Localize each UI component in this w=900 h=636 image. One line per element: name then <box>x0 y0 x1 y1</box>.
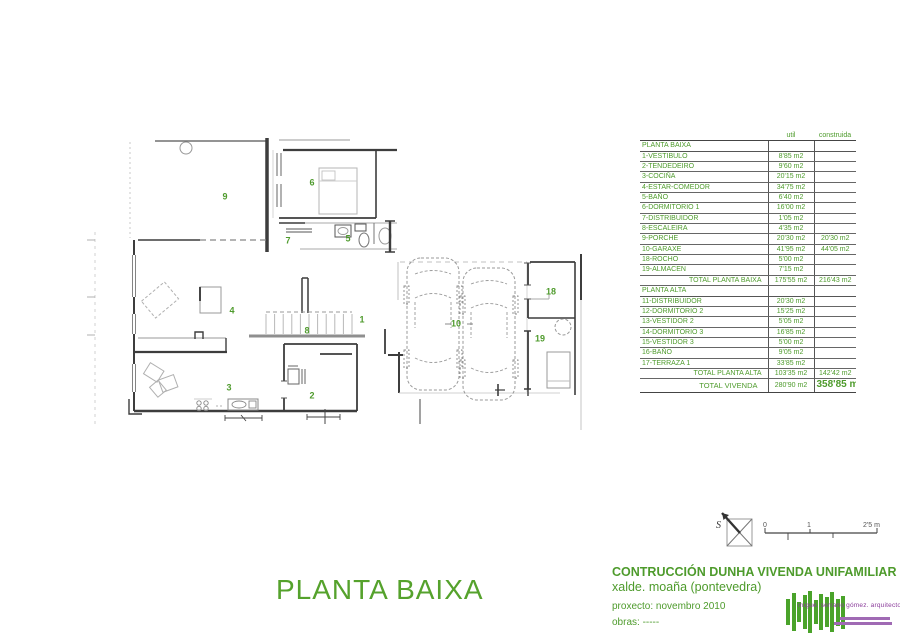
room-name-cell: TOTAL PLANTA BAIXA <box>640 275 768 285</box>
table-row: 6-DORMITORIO 116'00 m2 <box>640 203 856 213</box>
table-row: 19-ALMACEN7'15 m2 <box>640 265 856 275</box>
construida-value-cell <box>814 224 856 234</box>
table-section-header: PLANTA BAIXA <box>640 141 856 151</box>
table-row: 5-BAÑO6'40 m2 <box>640 193 856 203</box>
construida-value-cell: 142'42 m2 <box>814 368 856 378</box>
scale-label-0: 0 <box>763 522 767 529</box>
room-name-cell: 1-VESTIBULO <box>640 151 768 161</box>
util-value-cell: 16'85 m2 <box>768 327 814 337</box>
util-value-cell: 16'00 m2 <box>768 203 814 213</box>
bedroom-6 <box>273 140 397 218</box>
construida-value-cell <box>814 358 856 368</box>
logo-smallprint-line <box>834 622 892 625</box>
construida-value-cell <box>814 182 856 192</box>
north-letter: S <box>716 520 721 531</box>
room-number-label: 6 <box>309 177 314 187</box>
plan-sheet: 967548132101819 S 0 1 2'5 m util constru… <box>0 0 900 636</box>
construida-value-cell <box>814 348 856 358</box>
util-value-cell: 280'90 m2 <box>768 379 814 393</box>
project-title: CONTRUCCIÓN DUNHA VIVENDA UNIFAMILIAR <box>612 565 792 579</box>
areas-table: util construida PLANTA BAIXA1-VESTIBULO8… <box>640 131 856 393</box>
table-row: 12-DORMITORIO 215'25 m2 <box>640 306 856 316</box>
logo-bars-icon <box>786 590 847 634</box>
room-name-cell: PLANTA BAIXA <box>640 141 768 151</box>
construida-value-cell <box>814 255 856 265</box>
header-util: util <box>768 131 814 141</box>
construida-value-cell <box>814 203 856 213</box>
table-row: 2-TENDEDEIRO9'60 m2 <box>640 162 856 172</box>
construida-value-cell: 216'43 m2 <box>814 275 856 285</box>
util-value-cell: 7'15 m2 <box>768 265 814 275</box>
header-construida: construida <box>814 131 856 141</box>
room-name-cell: 8-ESCALEIRA <box>640 224 768 234</box>
room-name-cell: 10-GARAXE <box>640 244 768 254</box>
garage-10 <box>398 258 560 400</box>
room-name-cell: TOTAL PLANTA ALTA <box>640 368 768 378</box>
table-row: 13-VESTIDOR 25'05 m2 <box>640 317 856 327</box>
room-name-cell: 9-PORCHE <box>640 234 768 244</box>
room-name-cell: 18-ROCHO <box>640 255 768 265</box>
room-name-cell: 2-TENDEDEIRO <box>640 162 768 172</box>
room-labels: 967548132101819 <box>222 177 556 400</box>
scale-label-25: 2'5 m <box>863 522 880 529</box>
table-row: 8-ESCALEIRA4'35 m2 <box>640 224 856 234</box>
table-row: 15-VESTIDOR 35'00 m2 <box>640 337 856 347</box>
util-value-cell: 8'85 m2 <box>768 151 814 161</box>
util-value-cell: 9'60 m2 <box>768 162 814 172</box>
construida-value-cell: 358'85 m2 <box>814 379 856 393</box>
room-name-cell: 5-BAÑO <box>640 193 768 203</box>
construida-value-cell <box>814 296 856 306</box>
util-value-cell: 15'25 m2 <box>768 306 814 316</box>
bathroom-5 <box>279 221 397 252</box>
logo-smallprint-line <box>840 617 890 620</box>
table-row: 17-TERRAZA 133'85 m2 <box>640 358 856 368</box>
util-value-cell <box>768 286 814 296</box>
table-row: 10-GARAXE41'95 m244'05 m2 <box>640 244 856 254</box>
util-value-cell: 41'95 m2 <box>768 244 814 254</box>
construida-value-cell <box>814 265 856 275</box>
construida-value-cell <box>814 337 856 347</box>
util-value-cell: 20'30 m2 <box>768 296 814 306</box>
util-value-cell: 5'00 m2 <box>768 337 814 347</box>
util-value-cell: 175'55 m2 <box>768 275 814 285</box>
table-row: 14-DORMITORIO 316'85 m2 <box>640 327 856 337</box>
util-value-cell: 4'35 m2 <box>768 224 814 234</box>
util-value-cell: 5'05 m2 <box>768 317 814 327</box>
room-number-label: 10 <box>451 318 461 328</box>
room-name-cell: 15-VESTIDOR 3 <box>640 337 768 347</box>
construida-value-cell: 20'30 m2 <box>814 234 856 244</box>
scale-label-1: 1 <box>807 522 811 529</box>
header-spacer <box>640 131 768 141</box>
util-value-cell: 34'75 m2 <box>768 182 814 192</box>
construida-value-cell <box>814 141 856 151</box>
construida-value-cell <box>814 306 856 316</box>
almacen-19 <box>524 254 581 430</box>
room-number-label: 4 <box>229 305 234 315</box>
table-grand-total-row: TOTAL VIVENDA280'90 m2358'85 m2 <box>640 379 856 393</box>
architect-name: migue. serrano gómez. arquitecto <box>798 602 900 609</box>
room-name-cell: 14-DORMITORIO 3 <box>640 327 768 337</box>
room-name-cell: 4-ESTAR-COMEDOR <box>640 182 768 192</box>
areas-table-header: util construida <box>640 131 856 141</box>
table-row: 4-ESTAR-COMEDOR34'75 m2 <box>640 182 856 192</box>
room-name-cell: 17-TERRAZA 1 <box>640 358 768 368</box>
table-section-header: PLANTA ALTA <box>640 286 856 296</box>
room-number-label: 9 <box>222 191 227 201</box>
construida-value-cell <box>814 151 856 161</box>
project-date: proxecto: novembro 2010 <box>612 601 792 612</box>
scale-bar: 0 1 2'5 m <box>763 522 880 540</box>
project-obras: obras: ----- <box>612 617 792 628</box>
sheet-title: PLANTA BAIXA <box>276 574 484 606</box>
room-name-cell: 13-VESTIDOR 2 <box>640 317 768 327</box>
room-name-cell: 11-DISTRIBUIDOR <box>640 296 768 306</box>
table-row: 1-VESTIBULO8'85 m2 <box>640 151 856 161</box>
util-value-cell: 1'05 m2 <box>768 213 814 223</box>
room-name-cell: 16-BAÑO <box>640 348 768 358</box>
util-value-cell: 33'85 m2 <box>768 358 814 368</box>
table-row: 11-DISTRIBUIDOR20'30 m2 <box>640 296 856 306</box>
room-name-cell: 3-COCIÑA <box>640 172 768 182</box>
room-number-label: 2 <box>309 390 314 400</box>
table-row: 18-ROCHO5'00 m2 <box>640 255 856 265</box>
construida-value-cell <box>814 172 856 182</box>
construida-value-cell: 44'05 m2 <box>814 244 856 254</box>
room-number-label: 1 <box>359 314 364 324</box>
table-row: 16-BAÑO9'05 m2 <box>640 348 856 358</box>
architect-logo: migue. serrano gómez. arquitecto <box>786 590 898 636</box>
living-room-4 <box>129 240 227 414</box>
room-number-label: 5 <box>345 233 350 243</box>
room-name-cell: TOTAL VIVENDA <box>640 379 768 393</box>
construida-value-cell <box>814 193 856 203</box>
areas-table-body: util construida PLANTA BAIXA1-VESTIBULO8… <box>640 131 856 392</box>
room-name-cell: 6-DORMITORIO 1 <box>640 203 768 213</box>
table-row: 3-COCIÑA20'15 m2 <box>640 172 856 182</box>
util-value-cell: 103'35 m2 <box>768 368 814 378</box>
util-value-cell <box>768 141 814 151</box>
table-total-row: TOTAL PLANTA BAIXA175'55 m2216'43 m2 <box>640 275 856 285</box>
car-icon <box>460 268 518 400</box>
util-value-cell: 9'05 m2 <box>768 348 814 358</box>
util-value-cell: 20'30 m2 <box>768 234 814 244</box>
util-value-cell: 6'40 m2 <box>768 193 814 203</box>
room-name-cell: 19-ALMACEN <box>640 265 768 275</box>
title-block: CONTRUCCIÓN DUNHA VIVENDA UNIFAMILIAR xa… <box>612 565 792 628</box>
table-row: 7-DISTRIBUIDOR1'05 m2 <box>640 213 856 223</box>
room-number-label: 3 <box>226 382 231 392</box>
util-value-cell: 20'15 m2 <box>768 172 814 182</box>
construida-value-cell <box>814 317 856 327</box>
room-number-label: 19 <box>535 333 545 343</box>
room-name-cell: 12-DORMITORIO 2 <box>640 306 768 316</box>
util-value-cell: 5'00 m2 <box>768 255 814 265</box>
table-total-row: TOTAL PLANTA ALTA103'35 m2142'42 m2 <box>640 368 856 378</box>
room-name-cell: PLANTA ALTA <box>640 286 768 296</box>
construida-value-cell <box>814 327 856 337</box>
construida-value-cell <box>814 286 856 296</box>
north-arrow-icon: S <box>716 513 752 546</box>
table-row: 9-PORCHE20'30 m220'30 m2 <box>640 234 856 244</box>
construida-value-cell <box>814 213 856 223</box>
room-number-label: 18 <box>546 286 556 296</box>
room-number-label: 7 <box>285 235 290 245</box>
construida-value-cell <box>814 162 856 172</box>
room-number-label: 8 <box>304 325 309 335</box>
room-name-cell: 7-DISTRIBUIDOR <box>640 213 768 223</box>
kitchen-3 <box>134 363 357 411</box>
project-location: xalde. moaña (pontevedra) <box>612 580 792 594</box>
